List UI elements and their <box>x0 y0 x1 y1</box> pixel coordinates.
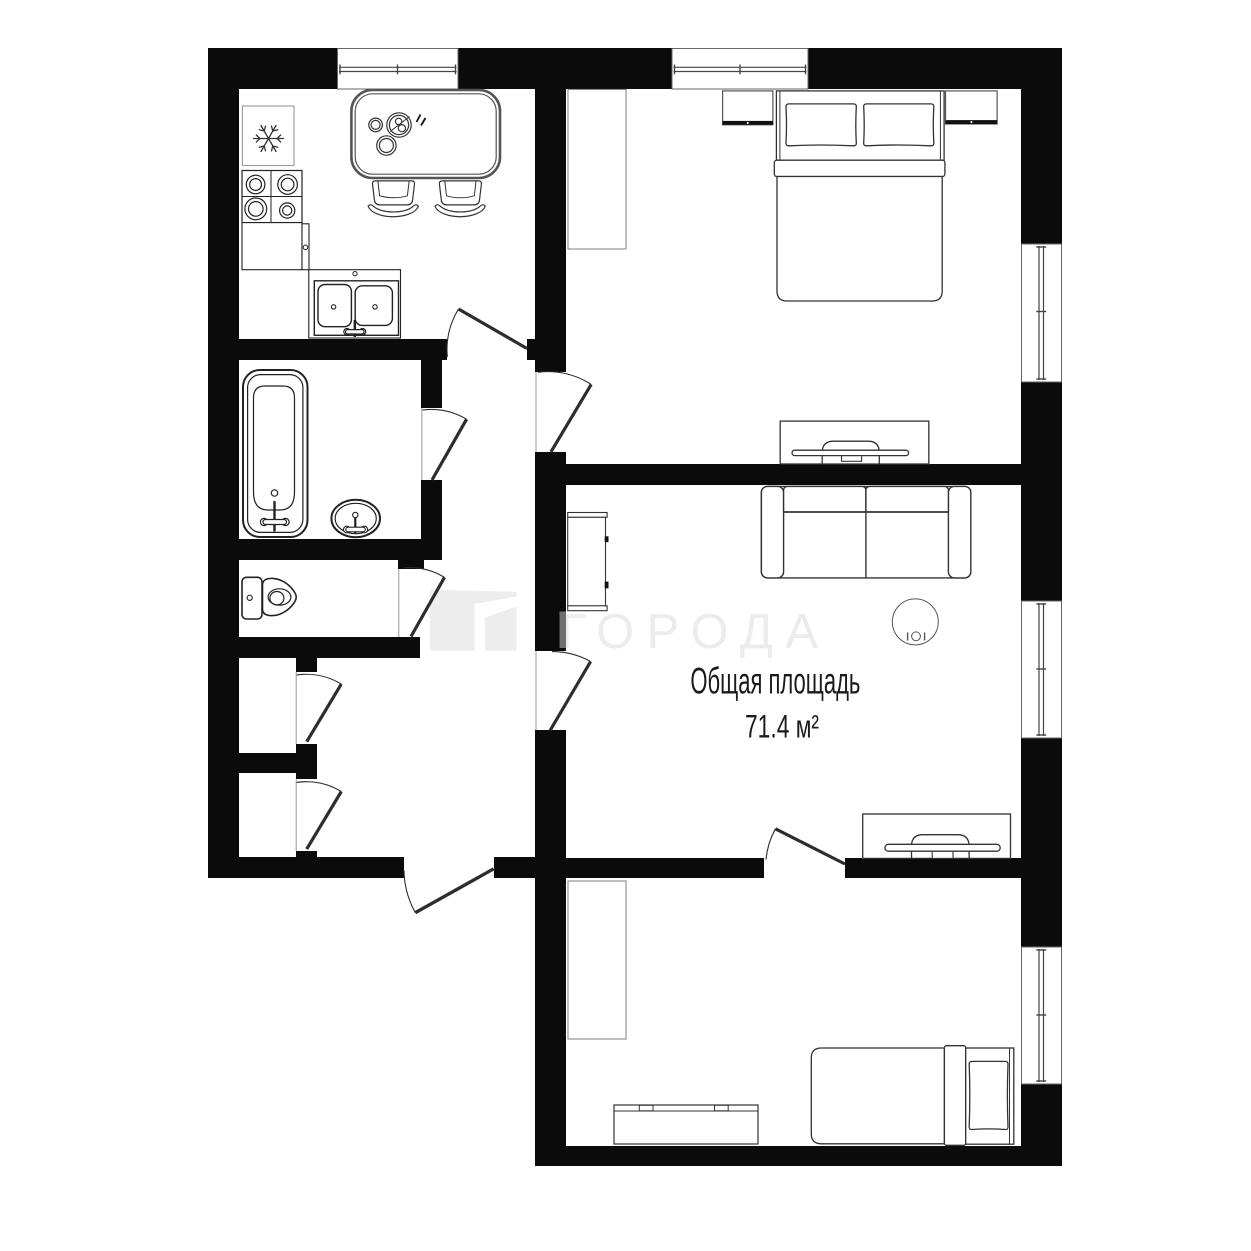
svg-text:71.4 м²: 71.4 м² <box>745 708 819 744</box>
svg-text:Общая площадь: Общая площадь <box>690 661 860 702</box>
